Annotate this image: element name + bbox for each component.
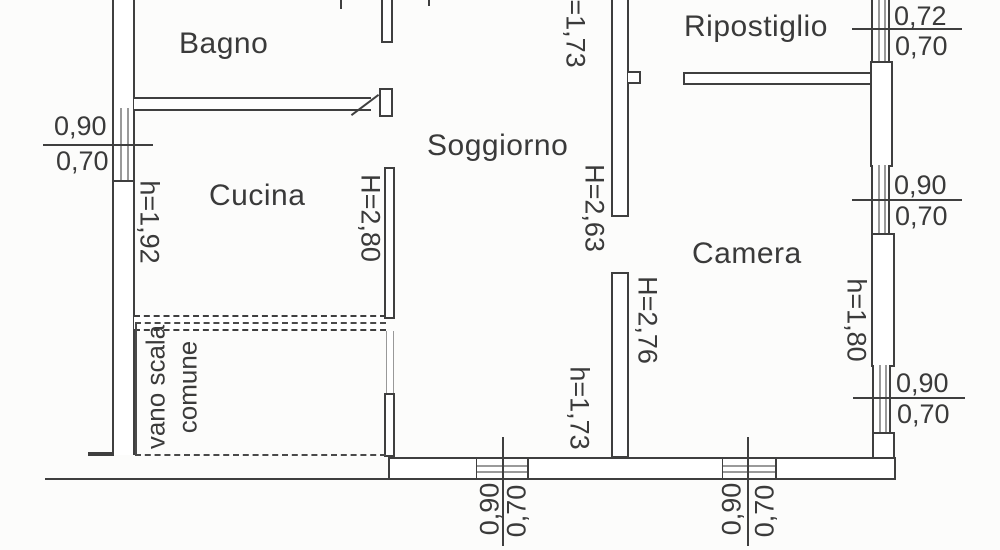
dim-label-height-top-opening: h=1,73	[560, 0, 591, 68]
room-label-cucina: Cucina	[209, 179, 305, 213]
wall-cucina-soggiorno	[384, 167, 395, 319]
dim-label-right-bottom-window-top: 0,90	[896, 368, 949, 399]
dim-label-height-camera-right: h=1,80	[841, 278, 872, 361]
wall-bottom-c	[775, 457, 896, 480]
wall-stub-top-2	[428, 0, 430, 6]
door-opening-vano-scala	[386, 331, 394, 395]
wall-right-pillar-2	[871, 233, 895, 367]
dim-label-right-middle-window-bottom: 0,70	[895, 201, 948, 232]
wall-ripostiglio-bottom	[683, 72, 871, 85]
dim-label-height-living-camera: H=2,76	[632, 276, 663, 364]
door-jamb-ripostiglio	[628, 71, 641, 84]
dim-label-height-kitchen-left: h=1,92	[134, 180, 165, 263]
window-glazing-line	[884, 0, 886, 63]
wall-soggiorno-camera	[611, 272, 629, 458]
dim-label-bottom-right-window-a: 0,90	[717, 483, 748, 536]
wall-right-pillar-1	[870, 61, 893, 167]
wall-left-middle	[112, 180, 135, 327]
wall-bottom-a	[388, 457, 478, 480]
wall-bagno-right	[381, 0, 393, 43]
room-label-soggiorno: Soggiorno	[427, 129, 568, 163]
room-label-vano-scala-line1: vano scala	[141, 325, 172, 449]
window-glazing-line	[878, 0, 880, 63]
wall-left-foot	[88, 452, 114, 456]
dim-label-height-kitchen-living: H=2,80	[355, 174, 386, 262]
dim-label-bottom-right-window-b: 0,70	[750, 485, 781, 538]
room-label-ripostiglio: Ripostiglio	[684, 10, 828, 44]
floor-plan: Bagno Cucina Soggiorno Ripostiglio Camer…	[0, 0, 1000, 550]
dim-label-height-living: H=2,63	[579, 164, 610, 252]
wall-bottom-b	[527, 457, 724, 480]
wall-left-upper	[112, 0, 135, 110]
room-label-bagno: Bagno	[179, 27, 268, 61]
dim-label-left-window-bottom: 0,70	[56, 146, 109, 177]
window-glazing-line	[885, 365, 887, 434]
wall-soggiorno-ripostiglio	[611, 0, 629, 217]
wall-stub-top-1	[340, 0, 342, 9]
building-edge-line	[45, 478, 390, 480]
window-glazing-line	[723, 471, 776, 473]
window-right-bottom	[872, 365, 891, 434]
dim-label-right-top-window-bottom: 0,70	[895, 31, 948, 62]
wall-left-lower	[112, 325, 135, 455]
window-bottom-right	[723, 457, 776, 480]
window-right-top	[871, 0, 890, 63]
room-label-camera: Camera	[692, 237, 802, 271]
window-glazing-line	[723, 465, 776, 467]
door-jamb-bagno	[379, 88, 393, 117]
dim-label-right-top-window-top: 0,72	[894, 1, 947, 32]
room-label-vano-scala-line2: comune	[173, 341, 204, 434]
wall-bagno-bottom	[134, 97, 371, 111]
dim-label-right-bottom-window-bottom: 0,70	[897, 399, 950, 430]
dim-label-bottom-left-window-b: 0,70	[502, 485, 533, 538]
dim-label-height-bottom-opening: h=1,73	[564, 366, 595, 449]
dim-label-right-middle-window-top: 0,90	[894, 170, 947, 201]
window-glazing-line	[879, 365, 881, 434]
dim-label-left-window-top: 0,90	[54, 111, 107, 142]
